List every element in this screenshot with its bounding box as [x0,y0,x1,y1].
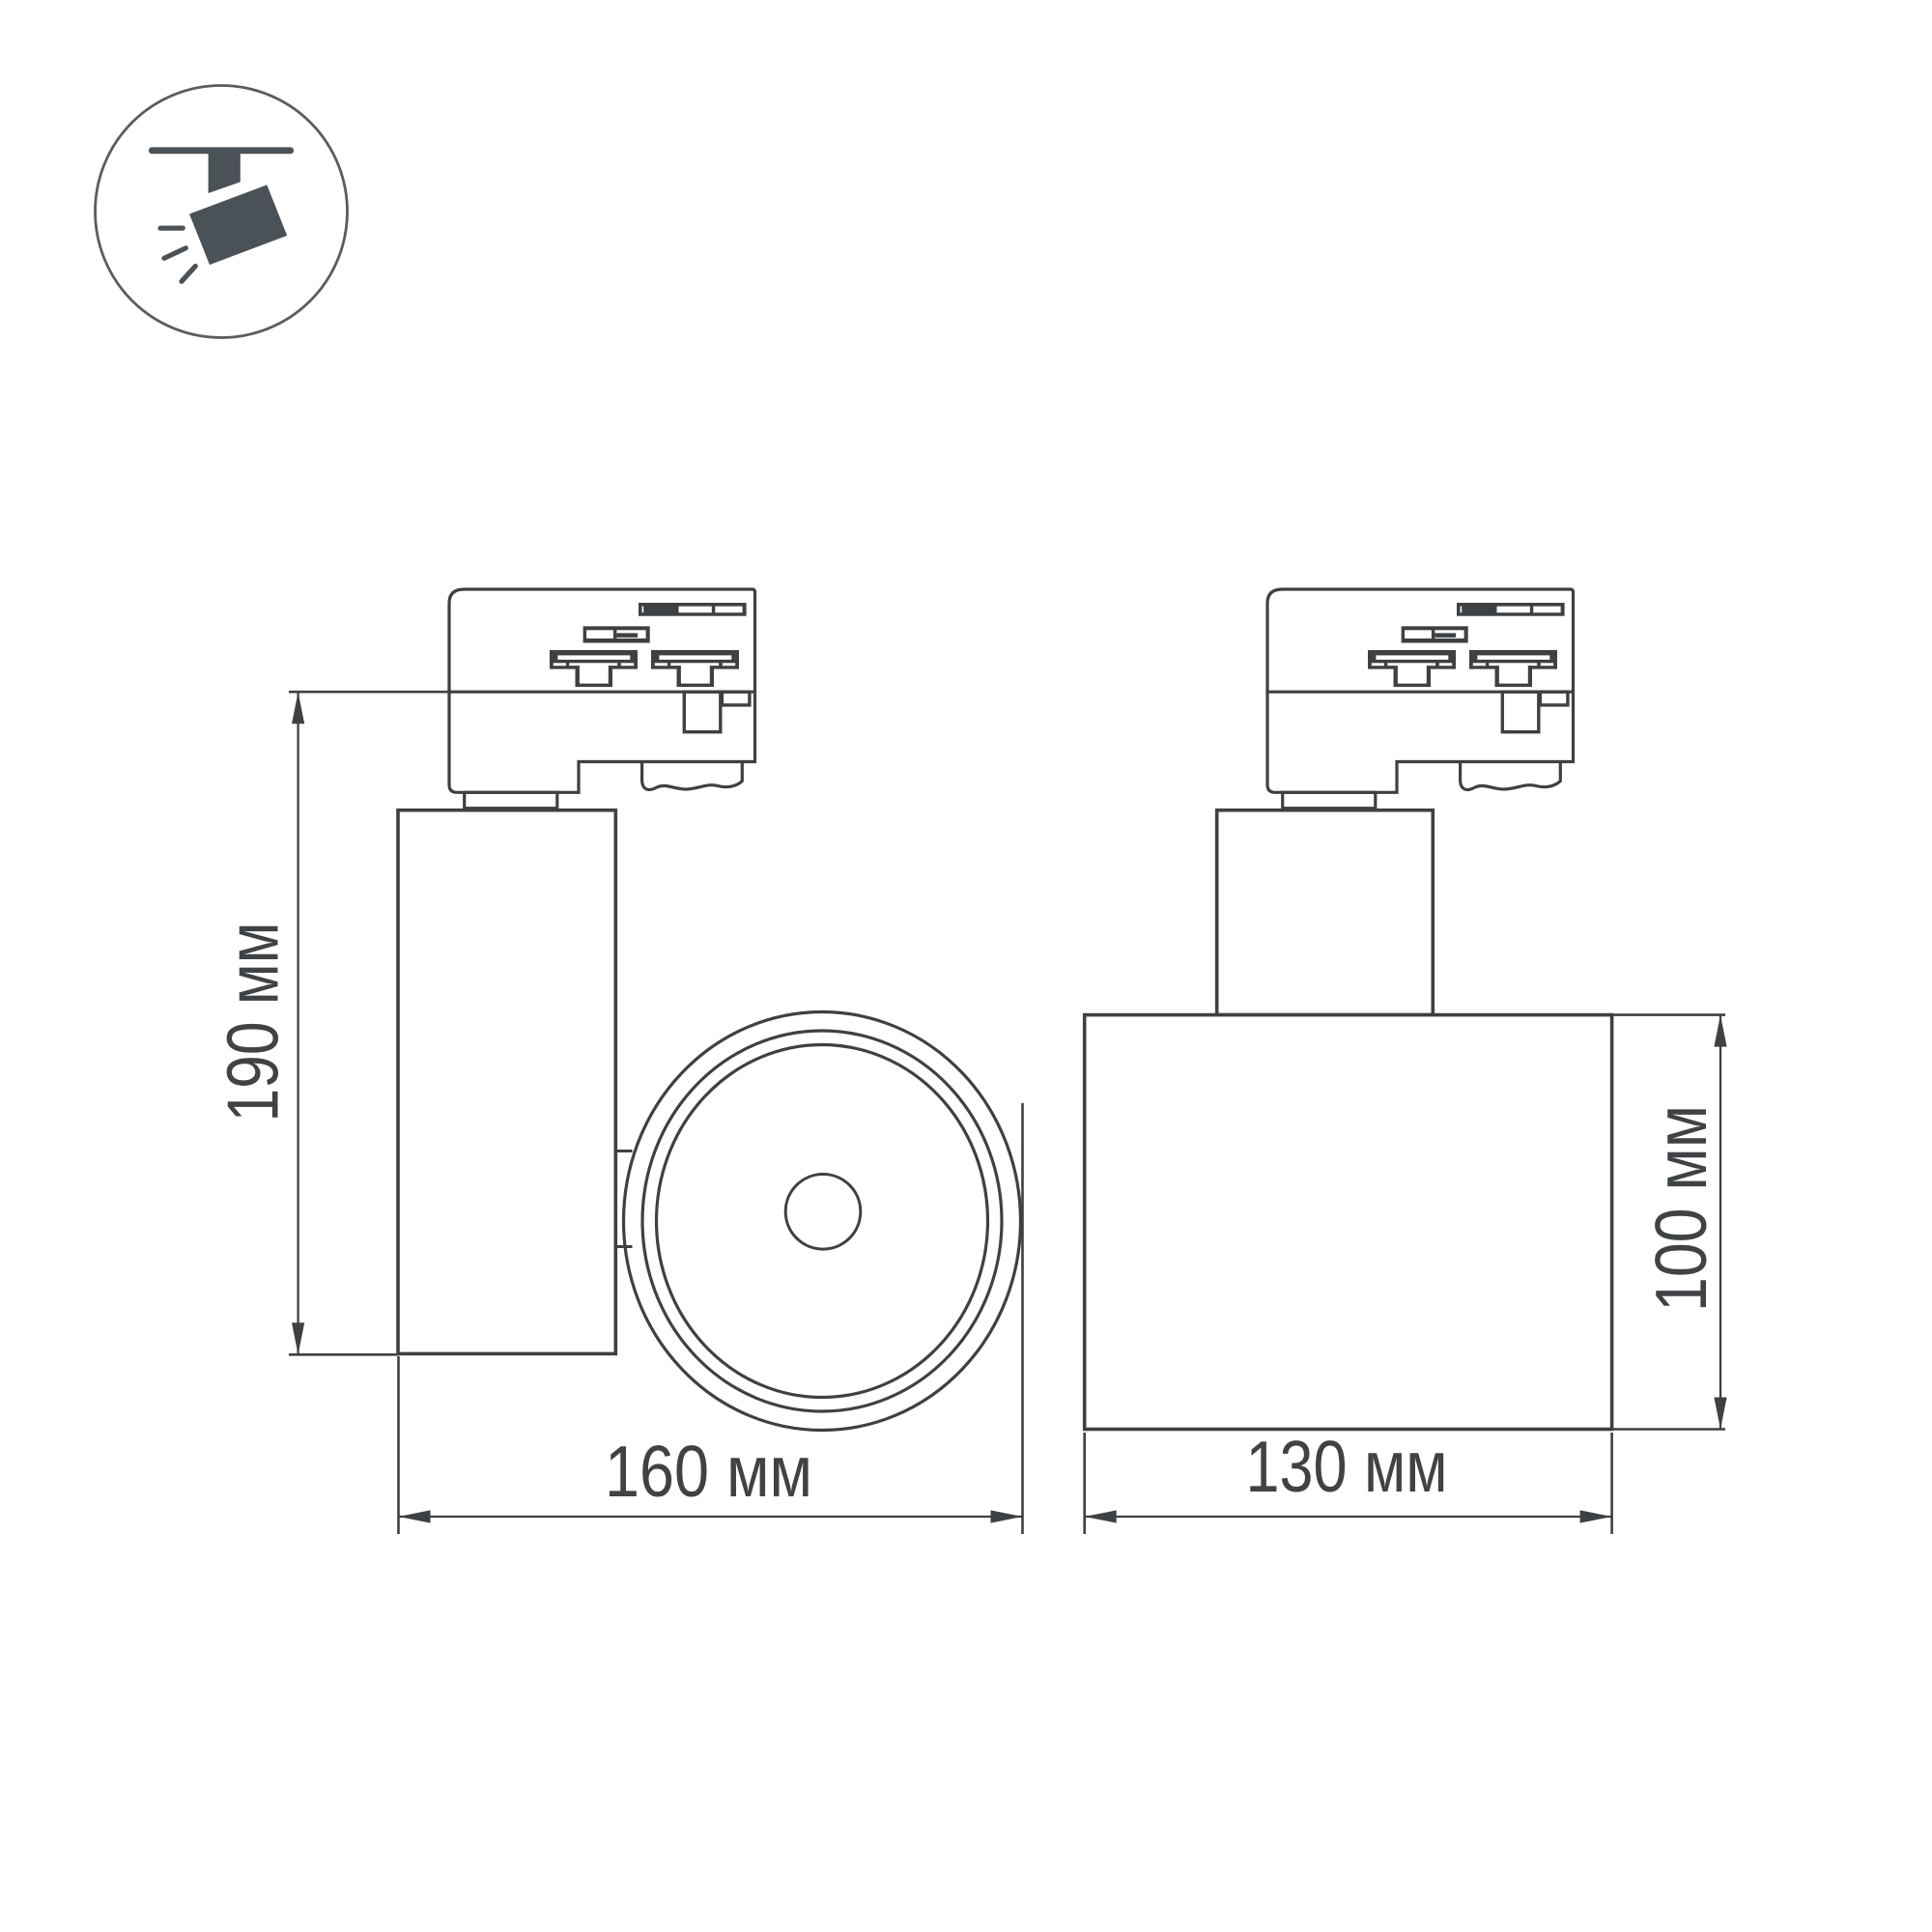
svg-text:100 мм: 100 мм [1640,1105,1721,1312]
svg-text:160 мм: 160 мм [605,1431,812,1512]
svg-text:130 мм: 130 мм [1246,1426,1448,1507]
svg-text:190 мм: 190 мм [213,923,294,1122]
